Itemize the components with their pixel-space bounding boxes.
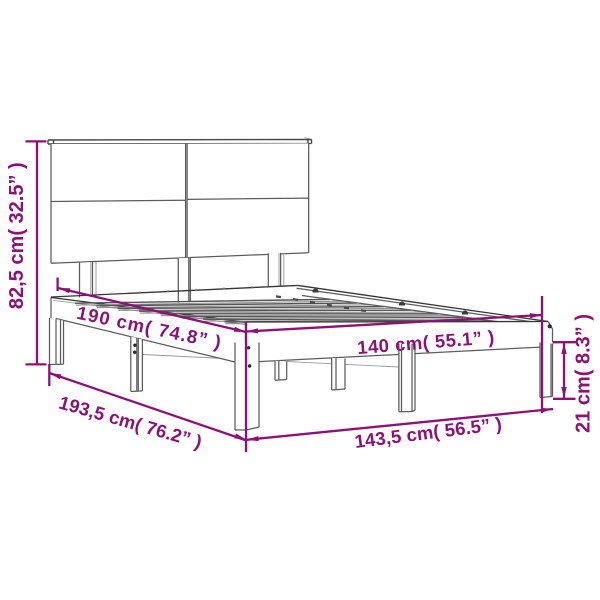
svg-text:82,5 cm( 32.5” ): 82,5 cm( 32.5” ) (6, 162, 28, 309)
svg-text:21 cm( 8.3” ): 21 cm( 8.3” ) (573, 314, 595, 433)
